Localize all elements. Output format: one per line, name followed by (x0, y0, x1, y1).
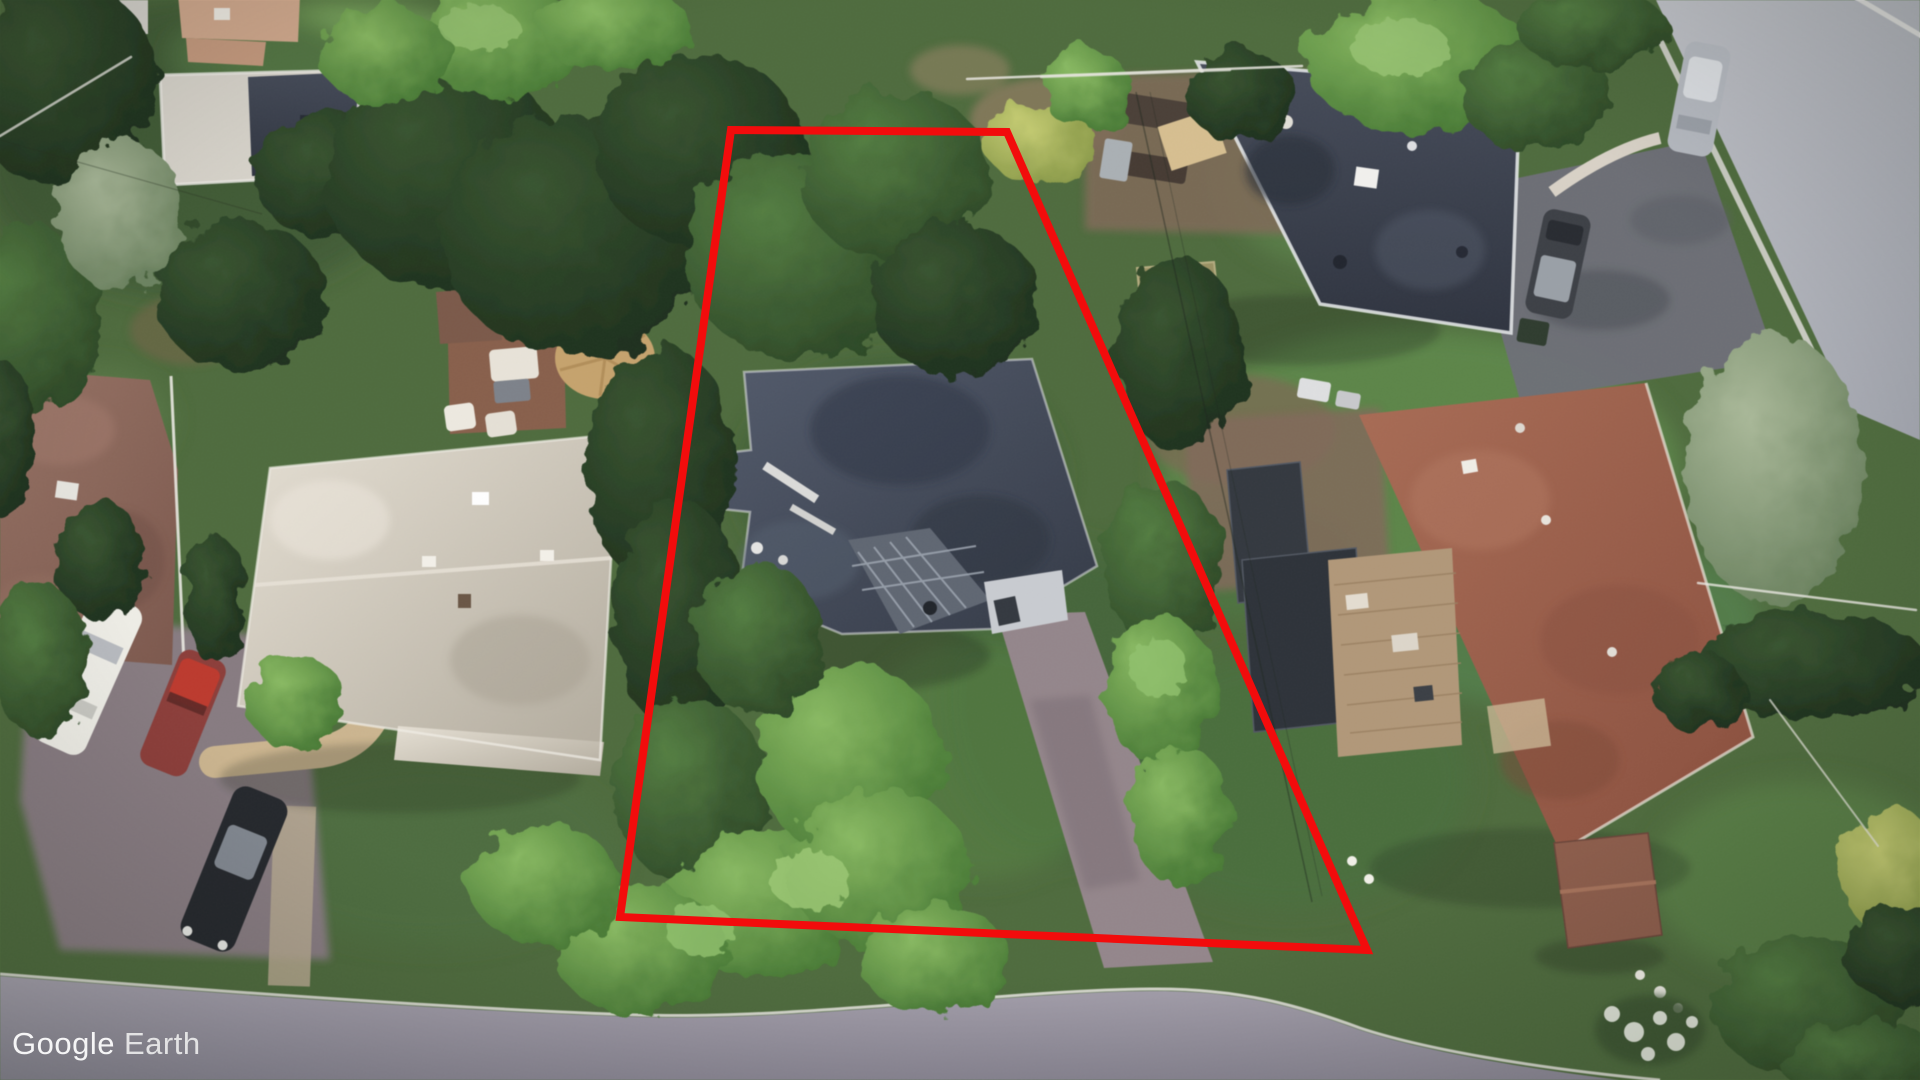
google-earth-map-viewport[interactable]: Google Earth (0, 0, 1920, 1080)
photo-layer (0, 0, 1920, 1080)
film-grain (0, 0, 1920, 1080)
aerial-imagery (0, 0, 1920, 1080)
